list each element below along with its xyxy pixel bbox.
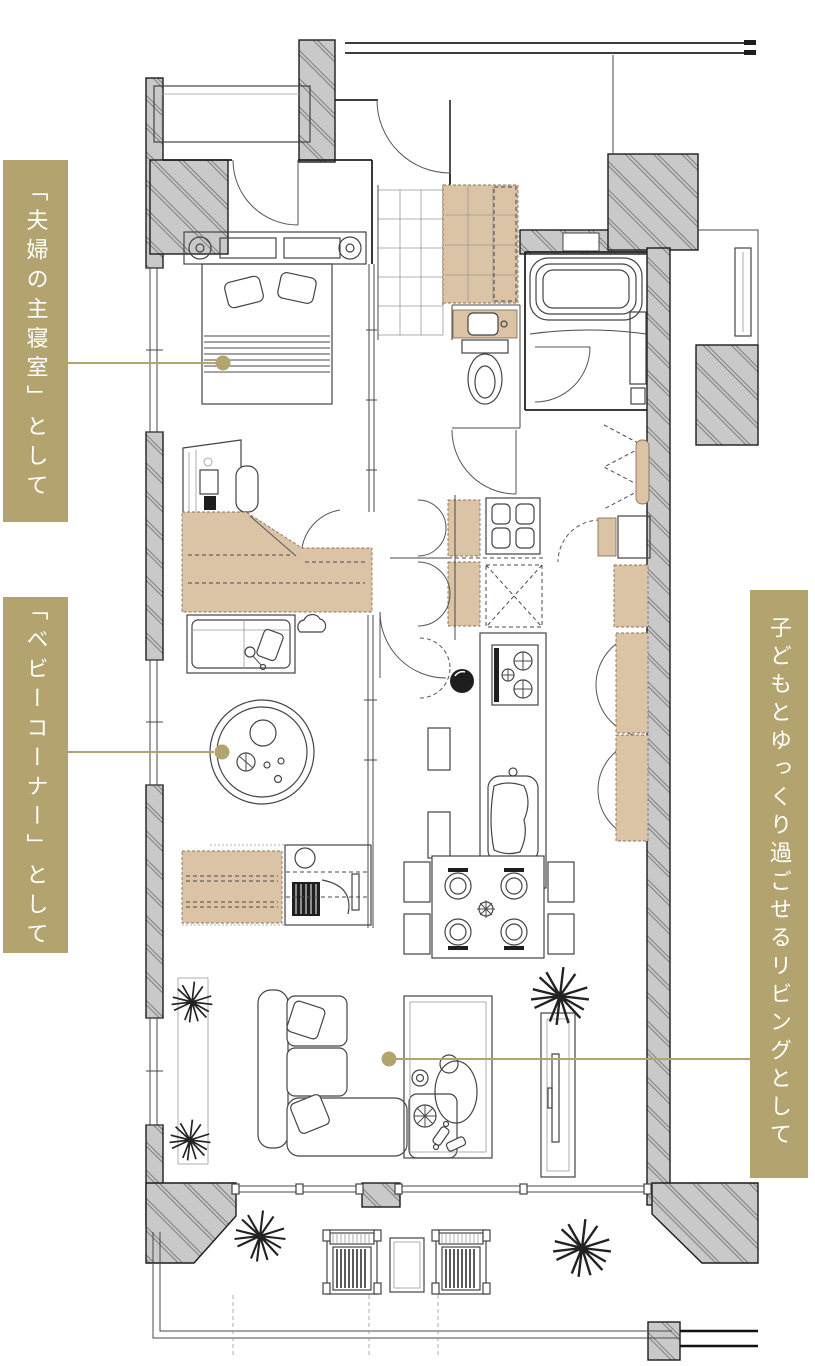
entry (377, 100, 518, 340)
genkan-tile (378, 190, 443, 335)
stove-unit (486, 498, 540, 554)
balcony-table (390, 1238, 424, 1292)
vanity (630, 312, 646, 384)
balcony-windows (232, 1184, 651, 1194)
shoe-cabinet (443, 185, 518, 303)
marker-dot-bedroom (216, 356, 231, 371)
label-master-bedroom: 「夫婦の主寝室」として (3, 160, 68, 522)
dining-chair (548, 862, 574, 902)
living-door (380, 612, 446, 678)
living-room (170, 967, 589, 1177)
stool (428, 728, 450, 770)
bath-door (535, 347, 590, 402)
kitchen (428, 633, 648, 888)
label-living: 子どもとゆっくり過ごせるリビングとして (750, 590, 808, 1178)
stool (428, 812, 450, 858)
desk-chair (236, 466, 258, 512)
master-bedroom (154, 86, 377, 528)
balcony-railing (153, 1232, 680, 1338)
floor-plan-page: 「夫婦の主寝室」として 「ベビーコーナー」として 子どもとゆっくり過ごせるリビン… (0, 0, 815, 1366)
bed (184, 232, 366, 404)
walk-in-closet (182, 510, 372, 612)
baby-corner (182, 615, 377, 928)
tv (552, 1054, 559, 1142)
toilet (462, 340, 508, 404)
play-mat-piano (182, 845, 371, 925)
pot-plant (450, 669, 474, 693)
hall-storage (380, 495, 650, 698)
gas-stove (492, 645, 538, 705)
marker-dot-baby-corner (215, 745, 230, 760)
pantry-doors (596, 633, 648, 841)
dining (404, 856, 574, 958)
bedroom-door (233, 160, 298, 225)
laundry-rod (636, 440, 649, 504)
entry-door (377, 100, 450, 174)
bathroom (525, 252, 649, 509)
plant (170, 1120, 211, 1161)
balcony (153, 1211, 680, 1356)
toilet-room (452, 305, 520, 494)
dining-chair (404, 914, 430, 954)
marker-dot-living (382, 1052, 397, 1067)
dining-chair (548, 914, 574, 954)
stool (295, 848, 315, 868)
crib (187, 615, 295, 673)
balcony-chair (323, 1230, 381, 1294)
sink (488, 768, 538, 862)
plant (531, 967, 589, 1025)
storage-hatch (486, 565, 542, 627)
plant (553, 1219, 611, 1277)
bathtub (530, 258, 642, 320)
toilet-door (452, 430, 516, 494)
floor-plan-drawing (0, 0, 815, 1366)
label-baby-corner: 「ベビーコーナー」として (3, 597, 68, 953)
cloud-mobile (298, 615, 326, 632)
balcony-chair (432, 1230, 490, 1294)
dining-chair (404, 862, 430, 902)
tv-board (541, 1013, 575, 1177)
plant (235, 1211, 286, 1262)
